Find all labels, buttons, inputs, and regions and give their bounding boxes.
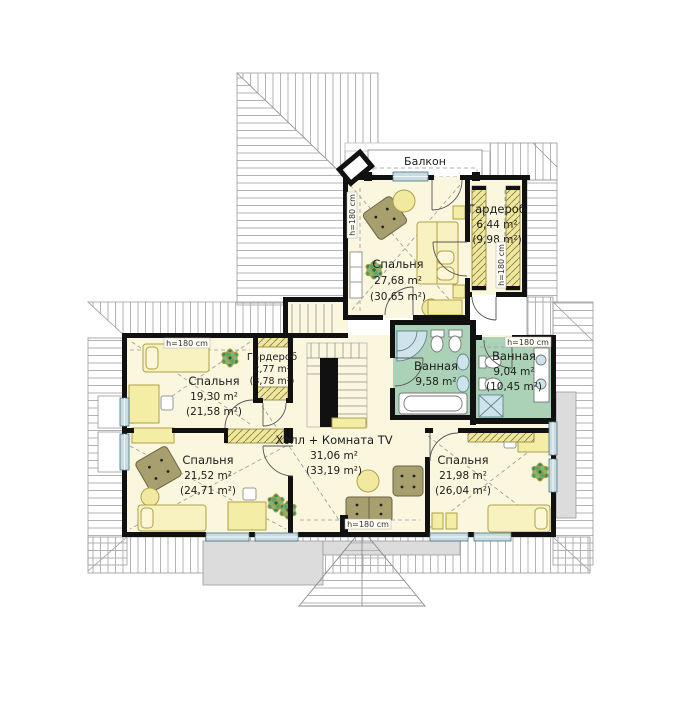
roof-top-right-band xyxy=(527,180,557,302)
svg-text:h=180 cm: h=180 cm xyxy=(348,194,357,236)
svg-text:9,58 m²: 9,58 m² xyxy=(415,376,456,388)
floor-corridor xyxy=(285,299,348,338)
svg-text:Гардероб: Гардероб xyxy=(247,352,297,363)
dresser-divider xyxy=(132,428,174,443)
svg-text:Спальня: Спальня xyxy=(372,257,423,271)
svg-text:Спальня: Спальня xyxy=(437,453,488,467)
svg-text:(33,19 m²): (33,19 m²) xyxy=(306,465,362,477)
svg-text:Холл + Комната TV: Холл + Комната TV xyxy=(275,433,392,447)
vanity-counter xyxy=(534,348,549,402)
svg-text:(21,58 m²): (21,58 m²) xyxy=(186,406,242,418)
svg-text:21,52 m²: 21,52 m² xyxy=(184,470,232,482)
svg-text:19,30 m²: 19,30 m² xyxy=(190,391,238,403)
svg-text:(26,04 m²): (26,04 m²) xyxy=(435,485,491,497)
svg-text:9,04 m²: 9,04 m² xyxy=(493,366,534,378)
bed-bottom-left xyxy=(138,505,206,531)
svg-text:Спальня: Спальня xyxy=(182,453,233,467)
shower-right-bath xyxy=(479,395,503,417)
svg-text:6,44 m²: 6,44 m² xyxy=(476,219,517,231)
dormer-apron-bottom-left xyxy=(203,541,323,585)
stair-stringer xyxy=(320,358,338,427)
washbasin xyxy=(457,376,469,392)
floor-plan-page: Балкон xyxy=(0,0,699,701)
seat-cube xyxy=(446,513,457,529)
label-wardrobe-top: Гардероб 6,44 m² (9,98 m²) xyxy=(468,202,526,246)
chair xyxy=(243,488,256,500)
desk-left-bedroom xyxy=(129,385,159,423)
window xyxy=(549,422,557,455)
svg-text:Ванная: Ванная xyxy=(492,349,536,363)
toilet xyxy=(431,330,444,352)
desk-bottom-left xyxy=(228,502,266,530)
tv-cabinet xyxy=(332,418,366,428)
height-note: h=180 cm xyxy=(345,519,391,529)
nightstand xyxy=(453,285,465,298)
label-wardrobe-small: Гардероб 2,77 m² (3,78 m²) xyxy=(247,352,297,387)
height-note: h=180 cm xyxy=(347,192,357,238)
window xyxy=(255,533,298,541)
label-bedroom-top: Спальня 27,68 m² (30,65 m²) xyxy=(370,257,426,303)
nightstand xyxy=(453,206,465,219)
height-note: h=180 cm xyxy=(164,338,210,348)
label-bedroom-left: Спальня 19,30 m² (21,58 m²) xyxy=(186,374,242,418)
shelf-unit xyxy=(350,252,362,298)
svg-text:Гардероб: Гардероб xyxy=(468,202,526,216)
svg-text:21,98 m²: 21,98 m² xyxy=(439,470,487,482)
dormer-apron-right xyxy=(556,392,576,518)
window xyxy=(474,533,511,541)
window xyxy=(430,533,468,541)
sofa xyxy=(346,497,392,521)
label-bathroom-right: Ванная 9,04 m² (10,45 m²) xyxy=(486,349,542,393)
balcony-label: Балкон xyxy=(404,155,446,168)
seat-cube xyxy=(432,513,443,529)
svg-text:Спальня: Спальня xyxy=(188,374,239,388)
svg-text:2,77 m²: 2,77 m² xyxy=(253,364,290,375)
chair xyxy=(161,396,173,410)
svg-text:(30,65 m²): (30,65 m²) xyxy=(370,291,426,303)
height-note: h=180 cm xyxy=(496,242,506,288)
stool xyxy=(141,488,159,506)
svg-text:h=180 cm: h=180 cm xyxy=(497,244,506,286)
svg-text:27,68 m²: 27,68 m² xyxy=(374,275,422,287)
stool xyxy=(393,190,415,212)
svg-text:(3,78 m²): (3,78 m²) xyxy=(250,376,295,387)
window xyxy=(206,533,249,541)
svg-text:31,06 m²: 31,06 m² xyxy=(310,450,358,462)
roof-mid-top-right xyxy=(527,297,553,335)
dresser-top-bedroom xyxy=(428,300,462,315)
svg-text:h=180 cm: h=180 cm xyxy=(166,339,208,348)
window xyxy=(120,434,129,470)
bidet xyxy=(449,330,462,352)
height-note: h=180 cm xyxy=(505,337,551,347)
floor-plan-drawing: Балкон xyxy=(0,0,699,701)
svg-text:h=180 cm: h=180 cm xyxy=(507,338,549,347)
armchair-hall xyxy=(393,466,423,496)
window xyxy=(549,459,557,492)
door-arc xyxy=(472,297,496,320)
window xyxy=(120,398,129,426)
svg-text:(10,45 m²): (10,45 m²) xyxy=(486,381,542,393)
washbasin xyxy=(457,354,469,370)
svg-text:(24,71 m²): (24,71 m²) xyxy=(180,485,236,497)
svg-text:h=180 cm: h=180 cm xyxy=(347,520,389,529)
svg-text:Ванная: Ванная xyxy=(414,359,458,373)
label-bedroom-bottom-right: Спальня 21,98 m² (26,04 m²) xyxy=(435,453,491,497)
double-bed-top-bedroom xyxy=(417,222,458,284)
bed-bottom-right xyxy=(488,505,550,532)
roof-top-right-upper xyxy=(490,143,557,180)
window xyxy=(393,172,428,181)
label-bedroom-bottom-left: Спальня 21,52 m² (24,71 m²) xyxy=(180,453,236,497)
bathtub xyxy=(399,393,467,414)
